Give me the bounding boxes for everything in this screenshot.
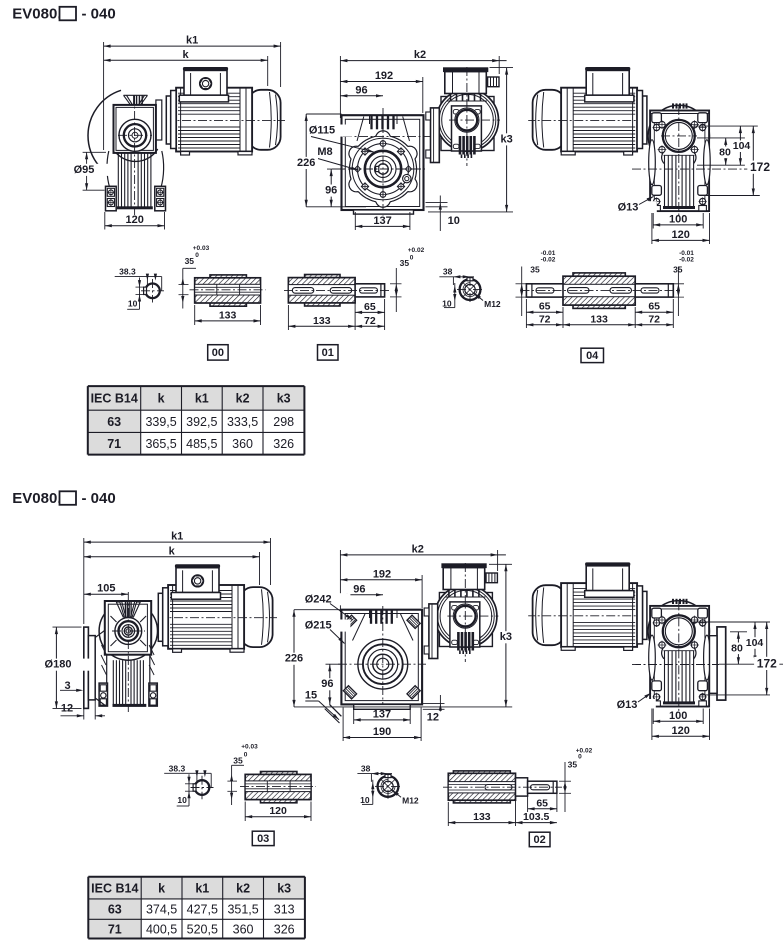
svg-text:333,5: 333,5 — [227, 415, 258, 429]
svg-text:-0.02: -0.02 — [541, 257, 556, 264]
svg-text:Ø215: Ø215 — [305, 620, 332, 632]
svg-text:298: 298 — [273, 415, 294, 429]
svg-text:190: 190 — [373, 726, 391, 738]
svg-text:100: 100 — [669, 213, 687, 225]
svg-text:80: 80 — [731, 642, 743, 654]
svg-text:339,5: 339,5 — [145, 415, 176, 429]
svg-text:0: 0 — [244, 752, 248, 759]
svg-text:104: 104 — [746, 637, 764, 649]
svg-text:04: 04 — [586, 350, 599, 362]
svg-text:00: 00 — [212, 347, 224, 359]
svg-text:10: 10 — [128, 298, 138, 308]
svg-text:IEC B14: IEC B14 — [91, 881, 138, 895]
svg-text:k1: k1 — [195, 881, 209, 895]
svg-text:Ø115: Ø115 — [309, 125, 335, 137]
svg-text:326: 326 — [274, 922, 295, 936]
svg-text:63: 63 — [107, 415, 121, 429]
svg-text:k3: k3 — [277, 392, 291, 406]
svg-text:0: 0 — [410, 255, 414, 262]
svg-text:38: 38 — [443, 267, 453, 277]
svg-text:15: 15 — [305, 690, 317, 702]
svg-text:374,5: 374,5 — [146, 903, 177, 917]
svg-text:k2: k2 — [414, 49, 426, 61]
svg-text:Ø180: Ø180 — [45, 659, 72, 671]
svg-text:12: 12 — [427, 711, 439, 723]
svg-text:10: 10 — [442, 298, 452, 308]
svg-text:k1: k1 — [186, 35, 198, 47]
svg-text:71: 71 — [107, 437, 121, 451]
svg-text:35: 35 — [233, 755, 243, 765]
svg-text:100: 100 — [669, 710, 687, 722]
svg-text:96: 96 — [353, 583, 365, 595]
svg-text:133: 133 — [219, 309, 237, 321]
svg-text:326: 326 — [273, 437, 294, 451]
svg-text:Ø95: Ø95 — [74, 164, 95, 176]
svg-text:-0.02: -0.02 — [679, 257, 694, 264]
svg-text:172: 172 — [750, 160, 770, 174]
svg-text:01: 01 — [322, 347, 334, 359]
svg-text:400,5: 400,5 — [146, 922, 177, 936]
svg-text:351,5: 351,5 — [227, 903, 258, 917]
svg-text:137: 137 — [373, 708, 391, 720]
svg-text:- 040: - 040 — [82, 490, 116, 507]
svg-text:120: 120 — [126, 214, 144, 226]
svg-text:485,5: 485,5 — [186, 437, 217, 451]
svg-text:38.3: 38.3 — [119, 267, 136, 277]
svg-text:120: 120 — [672, 725, 690, 737]
svg-text:03: 03 — [257, 833, 269, 845]
svg-text:96: 96 — [325, 185, 337, 197]
svg-text:k: k — [158, 392, 165, 406]
svg-text:10: 10 — [448, 215, 460, 227]
svg-text:520,5: 520,5 — [187, 922, 218, 936]
svg-text:103.5: 103.5 — [523, 811, 549, 823]
svg-text:0: 0 — [195, 252, 199, 259]
svg-text:k3: k3 — [277, 881, 291, 895]
svg-text:M12: M12 — [484, 299, 501, 309]
svg-text:65: 65 — [648, 301, 660, 313]
svg-text:365,5: 365,5 — [145, 437, 176, 451]
svg-text:k2: k2 — [236, 881, 250, 895]
svg-text:IEC B14: IEC B14 — [91, 392, 138, 406]
svg-text:192: 192 — [373, 568, 391, 580]
svg-text:+0.02: +0.02 — [576, 748, 593, 755]
svg-text:96: 96 — [355, 84, 367, 96]
svg-text:M8: M8 — [317, 146, 332, 158]
svg-text:Ø13: Ø13 — [617, 699, 638, 711]
svg-text:Ø13: Ø13 — [618, 201, 639, 213]
svg-text:360: 360 — [233, 922, 254, 936]
svg-text:72: 72 — [364, 315, 376, 327]
svg-text:02: 02 — [533, 834, 545, 846]
svg-text:k1: k1 — [195, 392, 209, 406]
svg-text:96: 96 — [321, 678, 333, 690]
svg-text:k3: k3 — [500, 631, 512, 643]
svg-text:392,5: 392,5 — [186, 415, 217, 429]
svg-text:k3: k3 — [500, 133, 512, 145]
svg-text:133: 133 — [590, 313, 608, 325]
svg-text:104: 104 — [733, 140, 751, 152]
svg-text:35: 35 — [568, 759, 578, 769]
svg-text:133: 133 — [473, 811, 491, 823]
svg-text:72: 72 — [648, 313, 660, 325]
svg-text:35: 35 — [400, 258, 410, 268]
svg-text:105: 105 — [97, 583, 115, 595]
svg-text:65: 65 — [539, 301, 551, 313]
svg-text:137: 137 — [373, 215, 391, 227]
svg-text:EV080.: EV080. — [12, 490, 61, 507]
svg-text:133: 133 — [313, 315, 331, 327]
svg-text:313: 313 — [274, 903, 295, 917]
svg-text:- 040: - 040 — [82, 6, 116, 23]
svg-text:k: k — [183, 49, 190, 61]
svg-text:226: 226 — [285, 653, 303, 665]
svg-text:120: 120 — [269, 805, 287, 817]
svg-text:192: 192 — [375, 70, 393, 82]
svg-text:Ø242: Ø242 — [305, 593, 332, 605]
svg-text:80: 80 — [719, 146, 731, 158]
svg-text:k2: k2 — [236, 392, 250, 406]
svg-text:71: 71 — [108, 922, 122, 936]
svg-text:35: 35 — [185, 256, 195, 266]
svg-text:226: 226 — [297, 157, 315, 169]
svg-text:k2: k2 — [412, 543, 424, 555]
svg-text:+0.03: +0.03 — [193, 245, 210, 252]
svg-text:427,5: 427,5 — [187, 903, 218, 917]
svg-text:172: 172 — [757, 656, 777, 670]
svg-text:k1: k1 — [171, 531, 183, 543]
svg-text:72: 72 — [539, 313, 551, 325]
svg-text:k: k — [169, 545, 176, 557]
svg-text:12: 12 — [61, 703, 73, 715]
svg-text:63: 63 — [108, 903, 122, 917]
svg-text:35: 35 — [673, 264, 683, 274]
svg-text:65: 65 — [364, 301, 376, 313]
svg-text:120: 120 — [672, 229, 690, 241]
svg-text:360: 360 — [232, 437, 253, 451]
svg-text:0: 0 — [578, 754, 582, 761]
svg-text:EV080.: EV080. — [12, 6, 61, 23]
svg-text:+0.03: +0.03 — [241, 744, 258, 751]
svg-text:k: k — [158, 881, 165, 895]
svg-text:65: 65 — [536, 797, 548, 809]
svg-text:35: 35 — [530, 264, 540, 274]
svg-text:+0.02: +0.02 — [408, 247, 425, 254]
